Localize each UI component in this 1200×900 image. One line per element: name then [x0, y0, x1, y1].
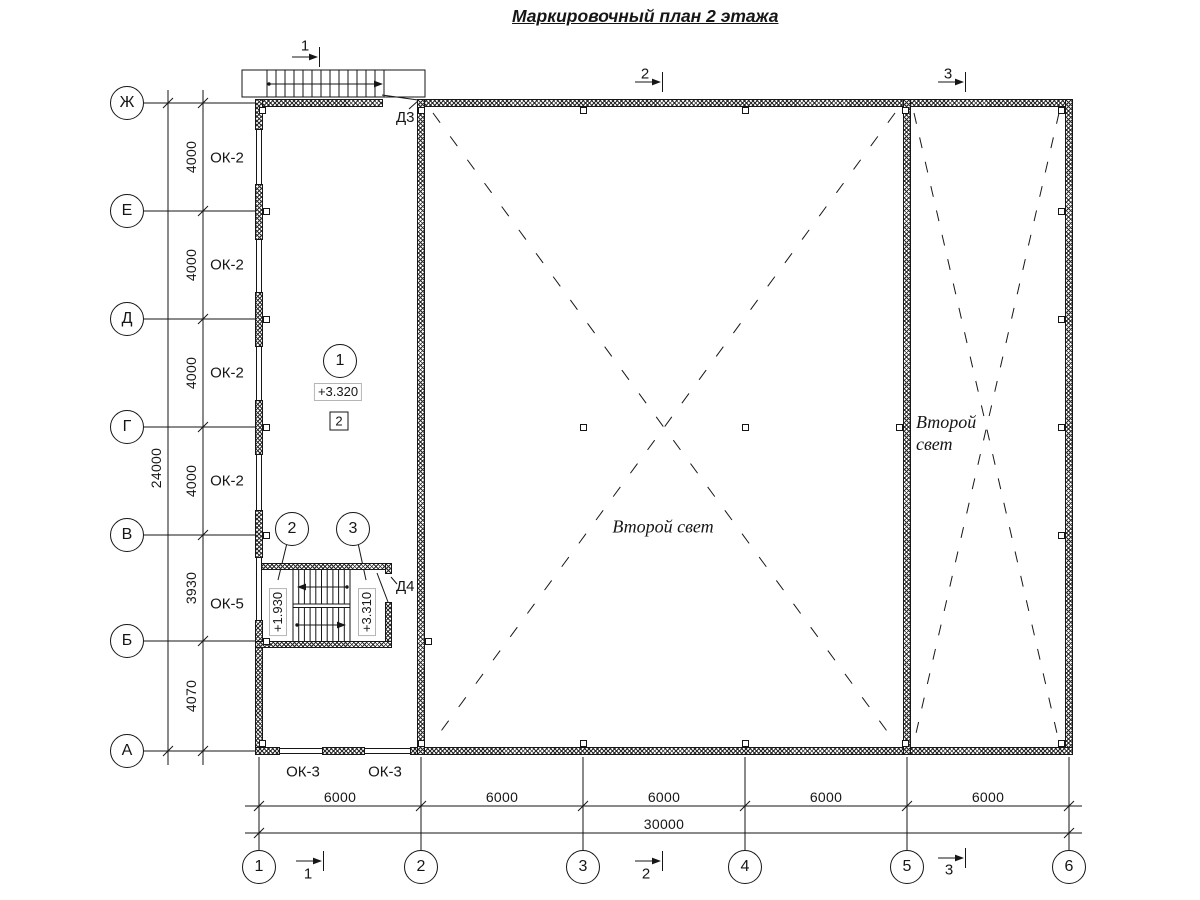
window-mark-ok2: ОК-2 — [210, 473, 244, 490]
detail-bubble-3: 3 — [336, 512, 370, 546]
column-marker — [902, 740, 909, 747]
dimension-bottom: 6000 — [486, 789, 518, 805]
axis-bubble-row: Д — [110, 302, 144, 336]
column-marker — [742, 740, 749, 747]
second-light-label-central: Второй свет — [612, 517, 713, 538]
section-number-2-top: 2 — [641, 66, 649, 83]
second-light-label-right-2: свет — [916, 434, 953, 455]
axis-bubble-col: 5 — [890, 850, 924, 884]
axis-bubble-col: 6 — [1052, 850, 1086, 884]
column-marker — [418, 107, 425, 114]
column-marker — [1058, 107, 1065, 114]
wall-right — [1065, 99, 1073, 755]
window-ok2 — [256, 240, 262, 292]
second-light-cross-central — [433, 113, 895, 742]
dimension-bottom: 6000 — [324, 789, 356, 805]
column-marker — [418, 740, 425, 747]
column-marker — [1058, 424, 1065, 431]
section-number-1-top: 1 — [301, 38, 309, 55]
window-ok2 — [256, 130, 262, 184]
stair-wall-bottom — [255, 641, 392, 648]
door-mark-d4: Д4 — [396, 578, 415, 595]
window-mark-ok3: ОК-3 — [368, 764, 402, 781]
dimension-bottom: 6000 — [810, 789, 842, 805]
wall-top-left — [255, 99, 383, 107]
axis-bubble-row: А — [110, 734, 144, 768]
section-number-3-top: 3 — [944, 66, 952, 83]
wall-left-pier — [255, 400, 263, 455]
column-marker — [263, 424, 270, 431]
column-marker — [263, 316, 270, 323]
column-marker — [896, 424, 903, 431]
axis-bubble-row: Г — [110, 410, 144, 444]
drawing-title: Маркировочный план 2 этажа — [512, 6, 779, 27]
window-ok5 — [256, 558, 262, 620]
axis-bubble-col: 1 — [242, 850, 276, 884]
column-marker — [1058, 316, 1065, 323]
dimension-left: 4070 — [183, 680, 199, 712]
stair-wall-stub — [385, 563, 392, 574]
section-number-3-bottom: 3 — [945, 862, 953, 879]
dimension-left: 4000 — [183, 141, 199, 173]
detail-bubble-1: 1 — [323, 344, 357, 378]
column-marker — [263, 532, 270, 539]
window-ok2 — [256, 347, 262, 400]
dimension-lines — [168, 90, 1082, 833]
column-marker — [425, 638, 432, 645]
column-marker — [1058, 208, 1065, 215]
axis-bubble-row: Е — [110, 194, 144, 228]
interior-stair — [293, 570, 350, 643]
wall-bottom — [255, 747, 280, 755]
window-ok3 — [280, 748, 322, 754]
wall-interior-axis5 — [903, 99, 911, 755]
axis-bubble-row: Ж — [110, 86, 144, 120]
wall-left-pier — [255, 99, 263, 130]
window-mark-ok2: ОК-2 — [210, 257, 244, 274]
section-number-2-bottom: 2 — [642, 866, 650, 883]
exterior-stair — [242, 70, 425, 97]
column-marker — [263, 638, 270, 645]
door-mark-d3: Д3 — [396, 109, 415, 126]
dimension-left: 4000 — [183, 465, 199, 497]
detail-square-2: 2 — [330, 412, 349, 431]
dimension-left: 3930 — [183, 572, 199, 604]
second-light-label-right-1: Второй — [916, 412, 976, 433]
column-marker — [1058, 532, 1065, 539]
wall-interior-axis2 — [417, 99, 425, 755]
wall-left-pier — [255, 184, 263, 240]
elevation-stair-low: +1.930 — [269, 588, 287, 636]
axis-leader-lines-left — [144, 103, 255, 751]
wall-bottom — [322, 747, 365, 755]
wall-top-right — [417, 99, 1073, 107]
window-ok3 — [365, 748, 410, 754]
dimension-left: 4000 — [183, 249, 199, 281]
column-marker — [580, 107, 587, 114]
wall-left-pier — [255, 510, 263, 558]
dimension-bottom-total: 30000 — [644, 816, 684, 832]
elevation-main: +3.320 — [314, 383, 362, 401]
plan-linework — [0, 0, 1200, 900]
axis-bubble-col: 2 — [404, 850, 438, 884]
wall-bottom — [410, 747, 1073, 755]
column-marker — [742, 107, 749, 114]
column-marker — [580, 424, 587, 431]
axis-bubble-row: В — [110, 518, 144, 552]
column-marker — [263, 208, 270, 215]
column-marker — [742, 424, 749, 431]
axis-bubble-col: 4 — [728, 850, 762, 884]
dimension-left-total: 24000 — [148, 448, 164, 488]
elevation-stair-high: +3.310 — [358, 588, 376, 636]
dimension-bottom: 6000 — [972, 789, 1004, 805]
column-marker — [1058, 740, 1065, 747]
window-mark-ok5: ОК-5 — [210, 596, 244, 613]
window-mark-ok2: ОК-2 — [210, 365, 244, 382]
detail-bubble-2: 2 — [275, 512, 309, 546]
window-mark-ok2: ОК-2 — [210, 150, 244, 167]
column-marker — [259, 740, 266, 747]
window-mark-ok3: ОК-3 — [286, 764, 320, 781]
dimension-left: 4000 — [183, 357, 199, 389]
floor-plan: Маркировочный план 2 этажа Ж Е Д Г В Б А… — [0, 0, 1200, 900]
section-number-1-bottom: 1 — [304, 866, 312, 883]
column-marker — [580, 740, 587, 747]
dimension-bottom: 6000 — [648, 789, 680, 805]
window-ok2 — [256, 455, 262, 510]
axis-bubble-row: Б — [110, 624, 144, 658]
dimension-ticks — [163, 98, 1074, 838]
wall-left-pier — [255, 292, 263, 347]
column-marker — [259, 107, 266, 114]
axis-bubble-col: 3 — [566, 850, 600, 884]
column-marker — [902, 107, 909, 114]
stair-wall-top — [258, 563, 392, 570]
